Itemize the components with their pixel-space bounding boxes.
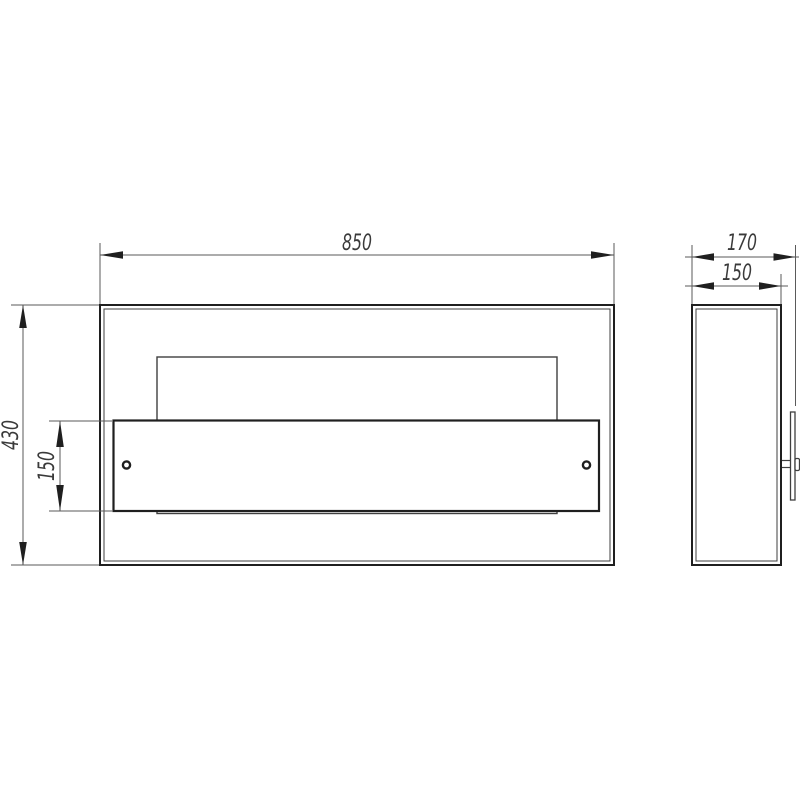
dimension-label-width: 850 [342,231,372,256]
arrowhead-left-icon [692,282,714,290]
dimension-label-depth-body: 150 [722,261,752,286]
side-body-inner-line [696,309,777,561]
arrowhead-left-icon [692,253,714,261]
glass-panel-edge [791,412,796,500]
arrowhead-down-icon [56,485,64,511]
arrowhead-up-icon [19,305,27,328]
front-panel [114,421,600,512]
side-depth-body-dimension: 150 [685,261,788,304]
arrowhead-right-icon [591,251,614,259]
arrowhead-down-icon [19,542,27,565]
arrowhead-left-icon [100,251,123,259]
arrowhead-right-icon [759,282,781,290]
arrowhead-right-icon [774,253,796,261]
dimension-label-depth-overall: 170 [727,231,757,256]
technical-drawing-canvas: 850 430 150 [0,0,800,800]
dimension-label-height: 430 [0,420,24,450]
arrowhead-up-icon [56,421,64,447]
front-view: 850 430 150 [0,231,614,565]
side-view: 170 150 [685,231,800,565]
glass-knob [795,459,800,471]
front-height-dimension: 430 [0,305,99,565]
side-body-outline [692,305,781,565]
dimension-label-panel-height: 150 [35,451,60,481]
screw-hole-right [583,461,590,468]
front-width-dimension: 850 [100,231,614,304]
screw-hole-left [123,461,130,468]
